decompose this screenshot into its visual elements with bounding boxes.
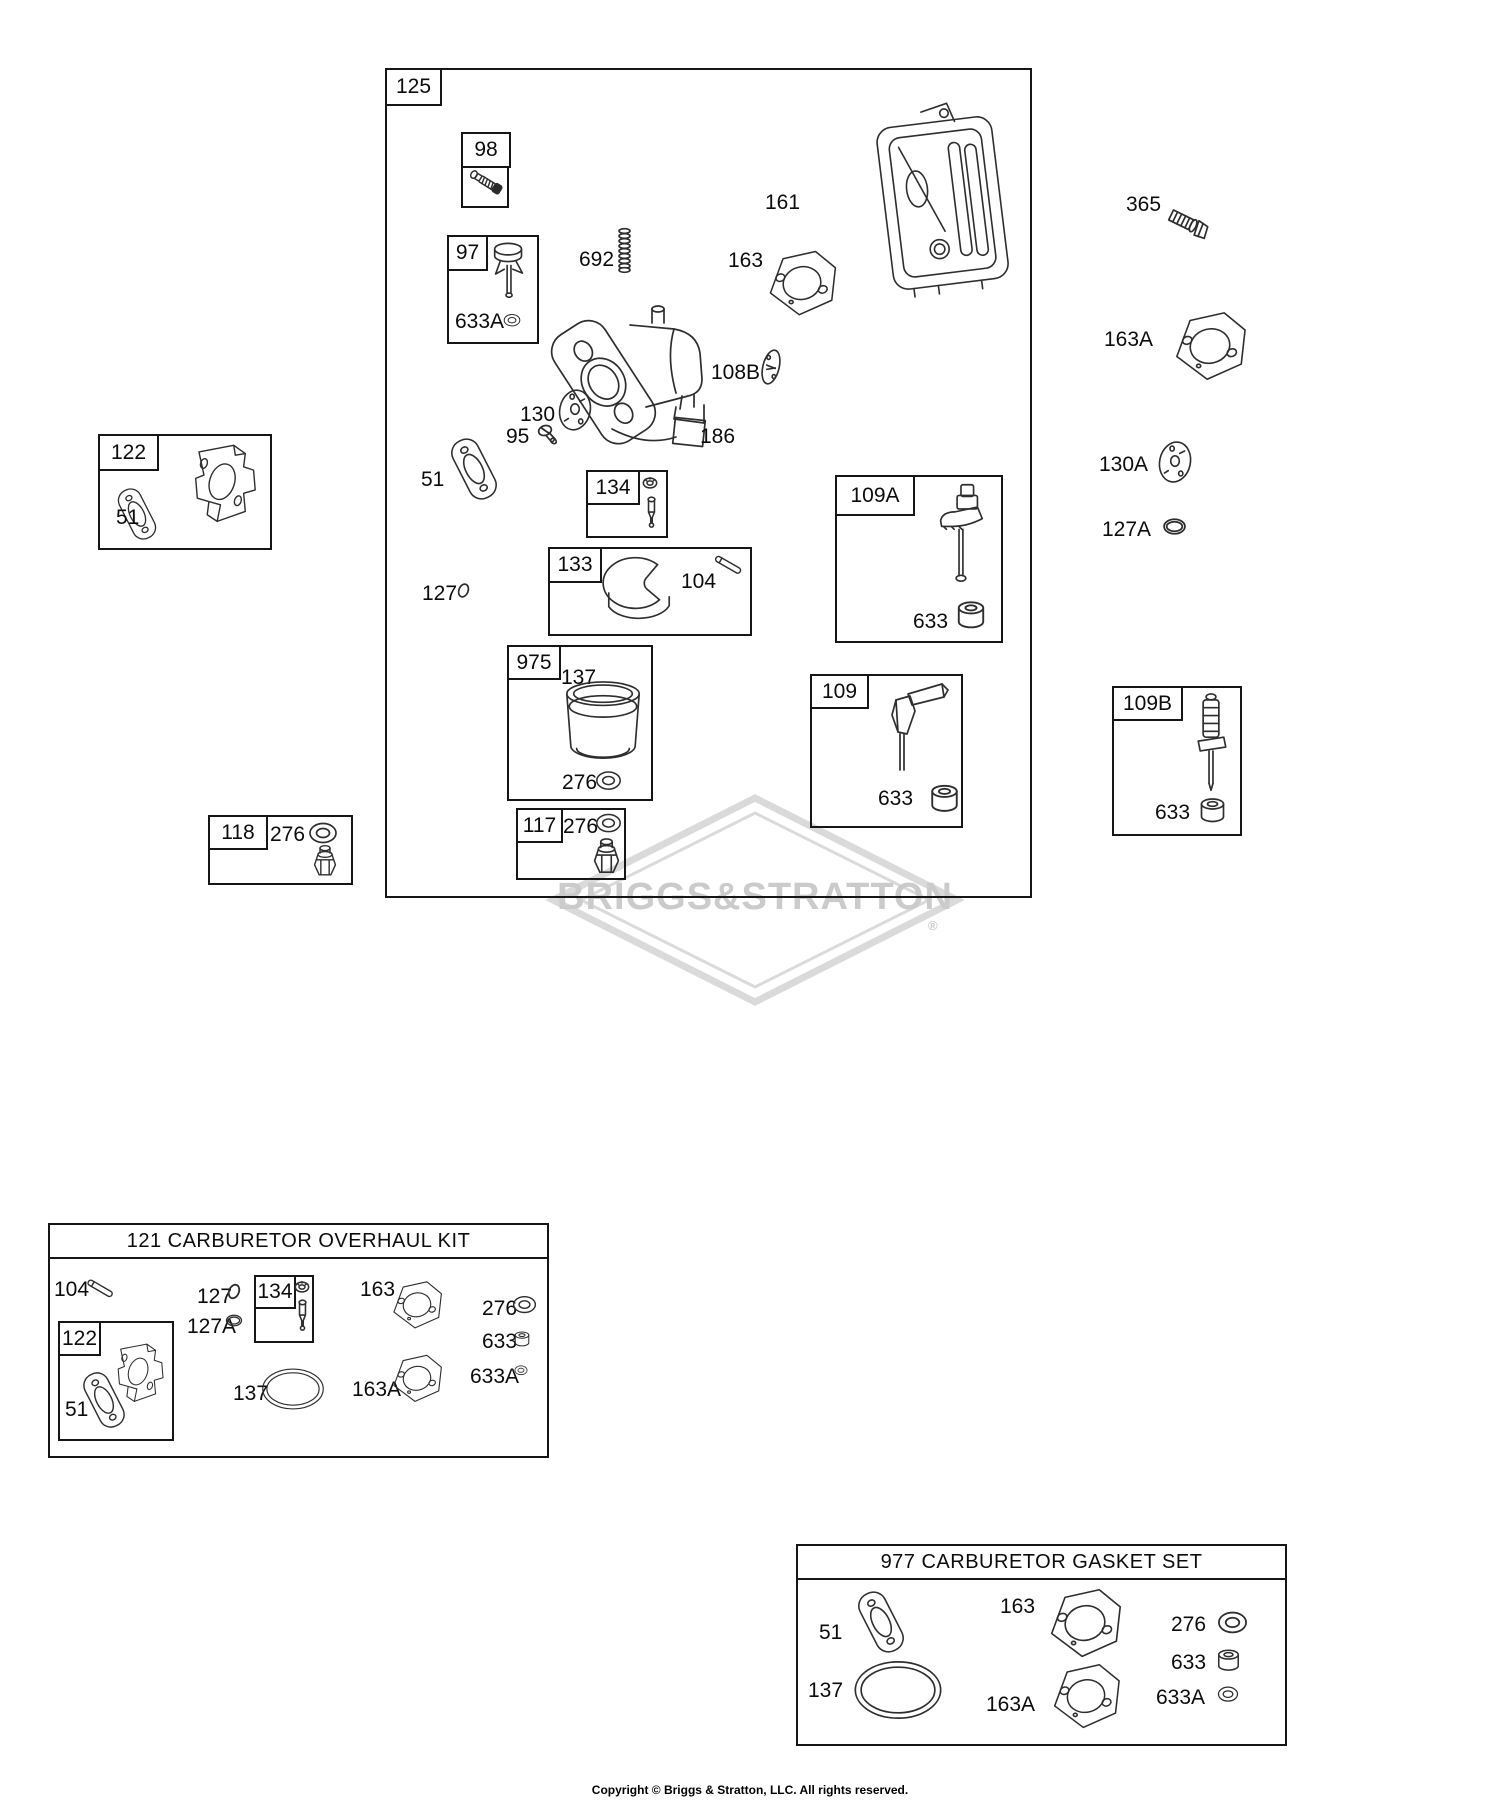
part-number-633A: 633A: [470, 1366, 519, 1387]
float-needle-icon: [645, 494, 658, 532]
group-box-109B: 109B 633: [1112, 686, 1242, 836]
seal-ring-icon: [1217, 1686, 1239, 1703]
carburetor-spacer-icon: [172, 442, 264, 528]
part-number-633A: 633A: [455, 311, 504, 332]
part-number-130A: 130A: [1099, 454, 1148, 475]
choke-plate-icon: [1154, 439, 1196, 485]
part-label-133: 133: [548, 547, 602, 583]
kit-title: 121 CARBURETOR OVERHAUL KIT: [48, 1223, 549, 1259]
part-number-633: 633: [913, 611, 948, 632]
pilot-jet-icon: [1190, 692, 1232, 804]
choke-plate-icon: [556, 387, 594, 433]
choke-valve-icon: [487, 241, 533, 309]
group-box-977-gasket-set: 977 CARBURETOR GASKET SET 51 137 163 163…: [796, 1544, 1287, 1746]
o-ring-icon: [456, 583, 471, 598]
float-hinge-pin-icon: [84, 1275, 116, 1302]
carburetor-parts-diagram: BRIGGS&STRATTON ® 125 98 97 633A 692 161…: [0, 0, 1500, 1800]
part-label-134: 134: [586, 470, 640, 505]
carburetor-gasket-icon: [390, 1347, 444, 1411]
washer-icon: [512, 1295, 537, 1315]
part-number-163A: 163A: [1104, 329, 1153, 350]
group-box-122: 122 51: [58, 1321, 174, 1441]
part-number-633: 633: [878, 788, 913, 809]
group-box-118: 118 276: [208, 815, 353, 885]
o-ring-icon: [1162, 516, 1187, 537]
seal-ring-icon: [503, 313, 521, 328]
bowl-o-ring-icon: [850, 1658, 946, 1722]
group-box-133: 133 104: [548, 547, 752, 636]
set-title: 977 CARBURETOR GASKET SET: [796, 1544, 1287, 1580]
part-number-276: 276: [563, 816, 598, 837]
throttle-plate-icon: [757, 346, 785, 388]
group-box-121-overhaul-kit: 121 CARBURETOR OVERHAUL KIT 104 127 127A…: [48, 1223, 549, 1458]
part-number-108B: 108B: [711, 362, 760, 383]
part-number-633: 633: [1155, 802, 1190, 823]
part-number-365: 365: [1126, 194, 1161, 215]
part-label-134: 134: [254, 1275, 296, 1309]
part-number-163A: 163A: [986, 1694, 1035, 1715]
intake-gasket-icon: [443, 432, 505, 506]
part-number-51: 51: [116, 507, 139, 528]
washer-icon: [308, 821, 338, 846]
mixture-jet-icon: [929, 481, 991, 597]
part-number-276: 276: [562, 772, 597, 793]
group-box-134: 134: [586, 470, 668, 538]
bushing-icon: [514, 1327, 530, 1350]
idle-speed-screw-icon: [465, 168, 505, 204]
bowl-o-ring-icon: [260, 1360, 326, 1418]
washer-icon: [595, 813, 622, 834]
part-label-122: 122: [58, 1321, 101, 1356]
air-cleaner-base-icon: [873, 98, 1015, 300]
plate-screw-icon: [537, 423, 561, 449]
group-box-109A: 109A 633: [835, 475, 1003, 643]
part-number-137: 137: [808, 1680, 843, 1701]
part-label-117: 117: [516, 808, 563, 843]
o-ring-icon: [226, 1282, 242, 1301]
seal-ring-icon: [514, 1363, 528, 1378]
needle-seat-icon: [294, 1280, 310, 1294]
part-number-163: 163: [1000, 1596, 1035, 1617]
carburetor-gasket-icon: [1168, 311, 1252, 383]
needle-valve-lever-icon: [852, 680, 952, 780]
bowl-screw-icon: [310, 844, 340, 879]
group-box-975: 975 137 276: [507, 645, 653, 801]
group-box-125: 125 98 97 633A 692 161 163 186 108B 130: [385, 68, 1032, 898]
part-label-97: 97: [447, 235, 488, 271]
part-label-122: 122: [98, 434, 159, 471]
o-ring-icon: [225, 1312, 243, 1329]
air-cleaner-gasket-icon: [765, 246, 839, 322]
part-number-161: 161: [765, 192, 800, 213]
spring-icon: [617, 227, 632, 273]
group-box-134: 134: [254, 1275, 314, 1343]
part-number-127A: 127A: [1102, 519, 1151, 540]
part-number-51: 51: [65, 1399, 88, 1420]
part-number-276: 276: [270, 824, 305, 845]
part-number-51: 51: [421, 469, 444, 490]
group-box-109: 109 633: [810, 674, 963, 828]
part-number-186: 186: [700, 426, 735, 447]
group-box-122: 122 51: [98, 434, 272, 550]
air-cleaner-gasket-icon: [390, 1268, 444, 1343]
part-label-109A: 109A: [835, 475, 915, 516]
hex-bolt-icon: [1166, 203, 1210, 249]
part-number-127: 127: [422, 583, 457, 604]
part-label-109B: 109B: [1112, 686, 1183, 721]
group-box-98: 98: [461, 132, 509, 208]
part-number-51: 51: [819, 1622, 842, 1643]
bushing-icon: [1199, 796, 1226, 823]
bushing-icon: [1217, 1647, 1240, 1672]
part-number-633: 633: [1171, 1652, 1206, 1673]
float-hinge-pin-icon: [710, 552, 746, 578]
copyright-notice: Copyright © Briggs & Stratton, LLC. All …: [0, 1783, 1500, 1797]
part-label-975: 975: [507, 645, 561, 680]
carburetor-gasket-icon: [1047, 1663, 1125, 1731]
part-number-163: 163: [728, 250, 763, 271]
bowl-washer-icon: [595, 770, 622, 792]
spacer-gasket-icon: [848, 1585, 914, 1659]
bushing-icon: [956, 599, 986, 629]
group-box-97: 97 633A: [447, 235, 539, 344]
part-number-276: 276: [1171, 1614, 1206, 1635]
part-number-130: 130: [520, 404, 555, 425]
float-bowl-icon: [561, 679, 645, 767]
part-label-118: 118: [208, 815, 268, 850]
part-label-125: 125: [385, 68, 442, 106]
bushing-icon: [930, 782, 959, 813]
float-needle-icon: [296, 1297, 309, 1335]
part-number-633: 633: [482, 1331, 517, 1352]
bowl-screw-icon: [590, 837, 623, 877]
washer-icon: [1216, 1611, 1249, 1635]
watermark-registered-mark: ®: [928, 918, 938, 933]
air-cleaner-gasket-icon: [1046, 1585, 1124, 1663]
part-label-98: 98: [461, 132, 511, 168]
needle-seat-icon: [642, 476, 658, 490]
part-number-633A: 633A: [1156, 1687, 1205, 1708]
part-number-692: 692: [579, 249, 614, 270]
float-icon: [600, 552, 678, 630]
part-number-95: 95: [506, 426, 529, 447]
group-box-117: 117 276: [516, 808, 626, 880]
